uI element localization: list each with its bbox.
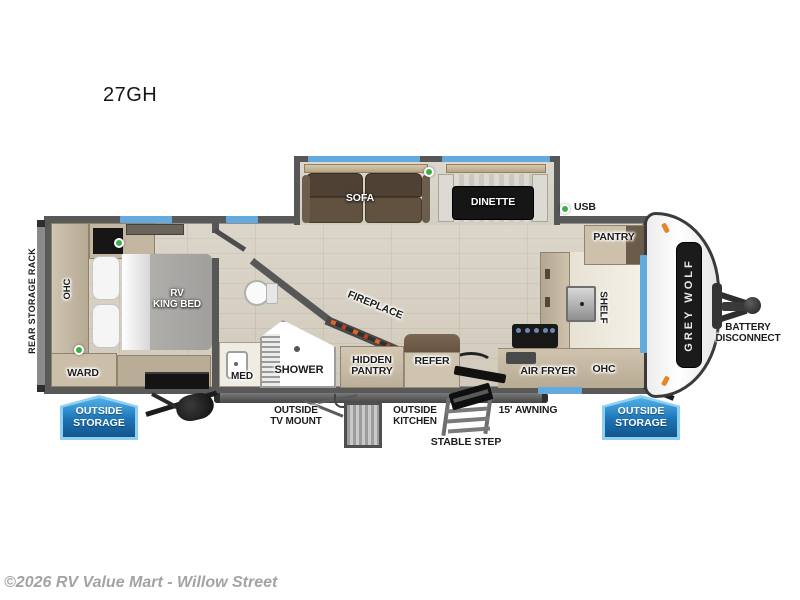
battery-disconnect-label: BATTERY DISCONNECT [704, 323, 792, 345]
air-fryer-appliance [506, 352, 536, 364]
air-fryer-label: AIR FRYER [510, 366, 586, 377]
usb-indicator [560, 204, 570, 214]
window-front [640, 255, 647, 353]
dinette-label: DINETTE [454, 197, 532, 208]
outside-storage-badge-right: OUTSIDE STORAGE [602, 395, 680, 440]
led-indicator-bedroom-bottom [74, 345, 84, 355]
toilet-tank [266, 283, 278, 304]
shower-label: SHOWER [262, 365, 336, 377]
burner [525, 328, 530, 333]
window-slide-dinette [442, 156, 550, 162]
kitchen-sink [566, 286, 596, 322]
rear-storage-rack-label: REAR STORAGE RACK [28, 241, 38, 361]
dinette-bench-right [532, 174, 548, 222]
med-sink-drain [234, 362, 238, 366]
shower-drain [294, 346, 300, 352]
bed-label: RV KING BED [138, 289, 216, 311]
usb-label: USB [574, 202, 608, 213]
step-platform-tread [453, 389, 489, 403]
cabinet-handle [545, 297, 550, 307]
window-bath [226, 216, 258, 223]
step-rung [447, 417, 489, 424]
sofa-label: SOFA [330, 193, 390, 204]
outside-storage-right-label: OUTSIDE STORAGE [615, 406, 667, 429]
refer-label: REFER [406, 356, 458, 367]
awning-label: 15' AWNING [494, 405, 562, 416]
bedroom-overhead-shelf [126, 224, 184, 235]
hitch-coupler [744, 297, 761, 314]
dinette-overhead-cabinet [446, 164, 546, 173]
outside-storage-left-label: OUTSIDE STORAGE [73, 406, 125, 429]
sofa-armrest-left [302, 175, 310, 223]
window-entry [538, 387, 582, 394]
outside-storage-badge-left-panel: OUTSIDE STORAGE [63, 398, 135, 437]
shelf-label: SHELF [597, 279, 608, 335]
led-indicator-bedroom-top [114, 238, 124, 248]
stove-cooktop [512, 324, 558, 348]
brand-logo-text: GREY WOLF [677, 242, 701, 368]
awning-end-cap-right [542, 393, 548, 403]
burner [516, 328, 521, 333]
led-indicator-slide [424, 167, 434, 177]
burner [543, 328, 548, 333]
rear-bumper-end-top [37, 220, 45, 227]
outside-tv-mount-label: OUTSIDE TV MOUNT [260, 406, 332, 428]
refrigerator-top [404, 334, 460, 354]
med-label: MED [222, 372, 262, 383]
wardrobe-label: WARD [52, 368, 114, 379]
bedroom-dresser-tv [145, 372, 209, 389]
bed-pillow-1 [92, 256, 120, 300]
outside-kitchen-label: OUTSIDE KITCHEN [386, 406, 444, 428]
page-title: 27GH [103, 84, 157, 107]
outside-storage-badge-left: OUTSIDE STORAGE [60, 395, 138, 440]
bedroom-ohc-label: OHC [63, 259, 73, 319]
pantry-label: PANTRY [586, 232, 642, 243]
watermark: ©2026 RV Value Mart - Willow Street [4, 574, 277, 592]
burner [534, 328, 539, 333]
floorplan-27gh: 27GH REAR STORAGE RACK OHC RV KING BED W… [0, 0, 800, 600]
kitchen-ohc-label: OHC [582, 364, 626, 375]
rear-bumper-end-bottom [37, 385, 45, 392]
window-slide-sofa [308, 156, 420, 162]
cabinet-handle [545, 269, 550, 279]
sink-drain [580, 302, 584, 306]
sofa-overhead-cabinet [304, 164, 428, 173]
sofa-armrest-right [422, 175, 430, 223]
hidden-pantry-label: HIDDEN PANTRY [340, 355, 404, 378]
rear-bumper [37, 227, 45, 385]
burner [550, 328, 555, 333]
outside-storage-badge-right-panel: OUTSIDE STORAGE [605, 398, 677, 437]
stable-step-label: STABLE STEP [428, 437, 504, 448]
shower-door-hatch [262, 334, 280, 388]
bath-wall-lower [212, 258, 219, 387]
outside-kitchen-hatch [344, 402, 382, 448]
bed-pillow-2 [92, 304, 120, 348]
window-bedroom [120, 216, 172, 223]
